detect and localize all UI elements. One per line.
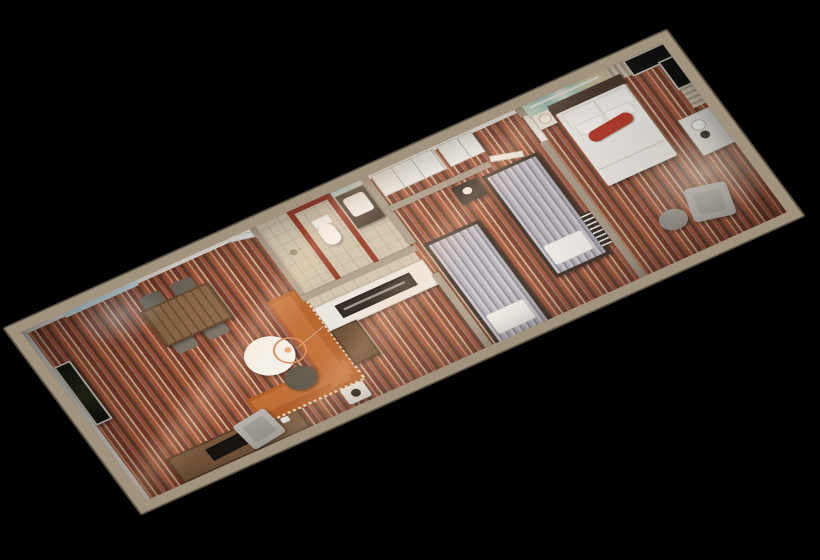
- living-west-wall-face: [21, 330, 150, 501]
- suite-unit: [2, 28, 806, 515]
- living-window: [63, 280, 139, 317]
- round-side-table: [654, 205, 693, 235]
- curtain: [679, 82, 706, 108]
- render-canvas: [0, 0, 820, 560]
- linen-closet-doors: [436, 131, 486, 167]
- suite-floor-carpet: [21, 43, 787, 500]
